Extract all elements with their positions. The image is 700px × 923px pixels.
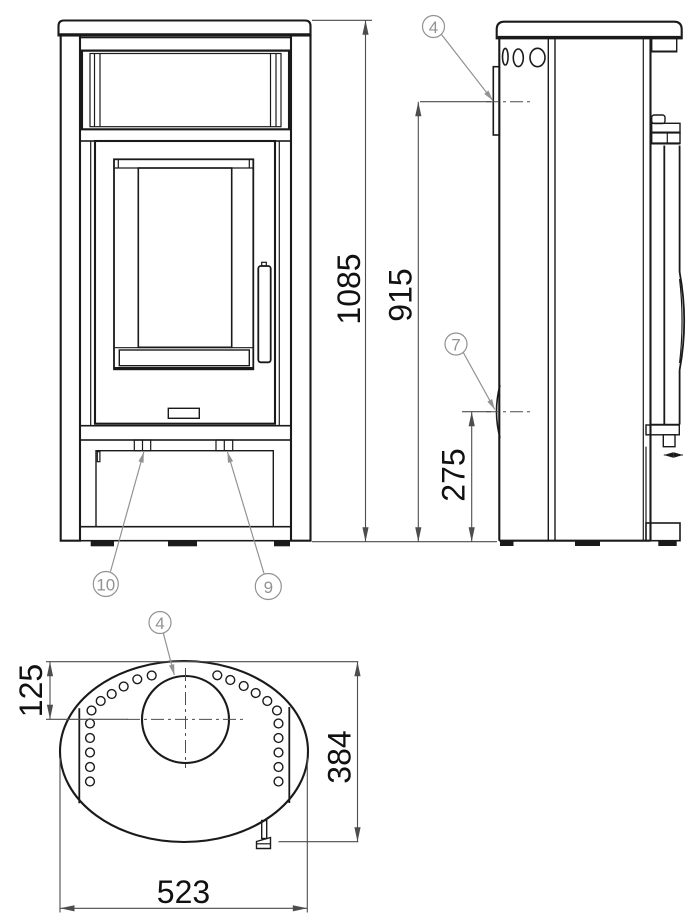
foot-left: [91, 541, 114, 547]
vent-hole: [274, 719, 283, 728]
callout-label-4-side: 4: [429, 18, 438, 37]
foot-center: [168, 541, 197, 547]
lower-rail: [80, 426, 291, 440]
vent-hole-side: [503, 48, 509, 65]
callout-label-10: 10: [96, 576, 115, 595]
side-top-plate: [497, 22, 682, 39]
vent-hole: [147, 671, 156, 680]
front-view: [59, 21, 311, 547]
front-step-block1: [652, 123, 680, 133]
callouts: 4 7 10 9 4: [93, 16, 495, 676]
front-top-lip: [652, 38, 677, 52]
air-slider: [168, 408, 199, 418]
warming-compartment: [82, 51, 289, 130]
vent-hole: [273, 706, 282, 715]
vent-hole: [119, 682, 128, 691]
callout-leader-4-side: [442, 35, 493, 101]
top-plate: [59, 21, 311, 36]
vent-hole: [87, 706, 96, 715]
callout-leader-4-top: [163, 633, 174, 675]
dim-flue-height: 915: [383, 268, 419, 321]
vent-hole: [86, 763, 95, 772]
vent-hole: [107, 690, 116, 699]
front-step-block2: [652, 133, 680, 144]
drawing-canvas: 1085 915 275 125 384 523 4 7 10 9: [0, 0, 700, 918]
body-outline-oval: [60, 661, 308, 842]
vent-hole: [226, 676, 235, 685]
vent-hole: [86, 719, 95, 728]
dim-depth: 384: [322, 730, 358, 783]
vent-hole: [239, 682, 248, 691]
side-foot-back: [500, 541, 514, 546]
vent-hole: [133, 675, 142, 684]
front-step-small: [652, 115, 665, 124]
callout-label-9: 9: [264, 578, 273, 597]
mid-rail: [80, 129, 291, 141]
right-side-panel: [291, 36, 311, 541]
foot-right: [274, 541, 290, 547]
top-view: [60, 661, 308, 849]
top-rail: [80, 38, 291, 51]
dim-flue-center-offset: 125: [13, 664, 49, 717]
plinth: [80, 527, 291, 541]
fire-door: [95, 141, 275, 424]
side-foot-mid: [575, 541, 600, 546]
handle-stem-top: [262, 821, 267, 839]
dim-rear-inlet-height: 275: [436, 448, 472, 501]
glass-bottom-bar: [119, 350, 249, 366]
callout-leader-9: [228, 452, 265, 574]
vent-hole: [251, 689, 260, 698]
vent-hole: [274, 763, 283, 772]
vent-hole: [213, 671, 222, 680]
vent-hole-side: [530, 48, 545, 66]
base-hinge-tick: [97, 452, 100, 462]
vent-hole-side: [513, 49, 523, 67]
callout-leader-10: [111, 452, 144, 572]
vent-hole: [86, 734, 95, 743]
door-handle: [258, 266, 270, 362]
vent-hole: [96, 697, 105, 706]
stove-technical-drawing: 1085 915 275 125 384 523 4 7 10 9: [0, 0, 700, 918]
door-handle-nub: [262, 262, 267, 266]
warming-compartment-inner: [90, 54, 281, 127]
callout-label-7: 7: [451, 336, 460, 355]
vent-hole: [263, 697, 272, 706]
dim-overall-height: 1085: [331, 253, 367, 324]
door-bottom-step2: [663, 435, 675, 447]
side-view: [493, 22, 684, 546]
left-side-panel: [61, 36, 80, 541]
vent-hole: [274, 748, 283, 757]
callout-leader-7: [463, 352, 495, 410]
dim-width: 523: [157, 874, 210, 910]
vent-hole: [86, 777, 95, 786]
door-glass: [138, 168, 231, 347]
callout-label-4-top: 4: [155, 614, 164, 633]
vent-hole: [274, 734, 283, 743]
handle-knob-top: [257, 838, 271, 849]
vent-hole: [86, 748, 95, 757]
vent-hole: [274, 777, 283, 786]
